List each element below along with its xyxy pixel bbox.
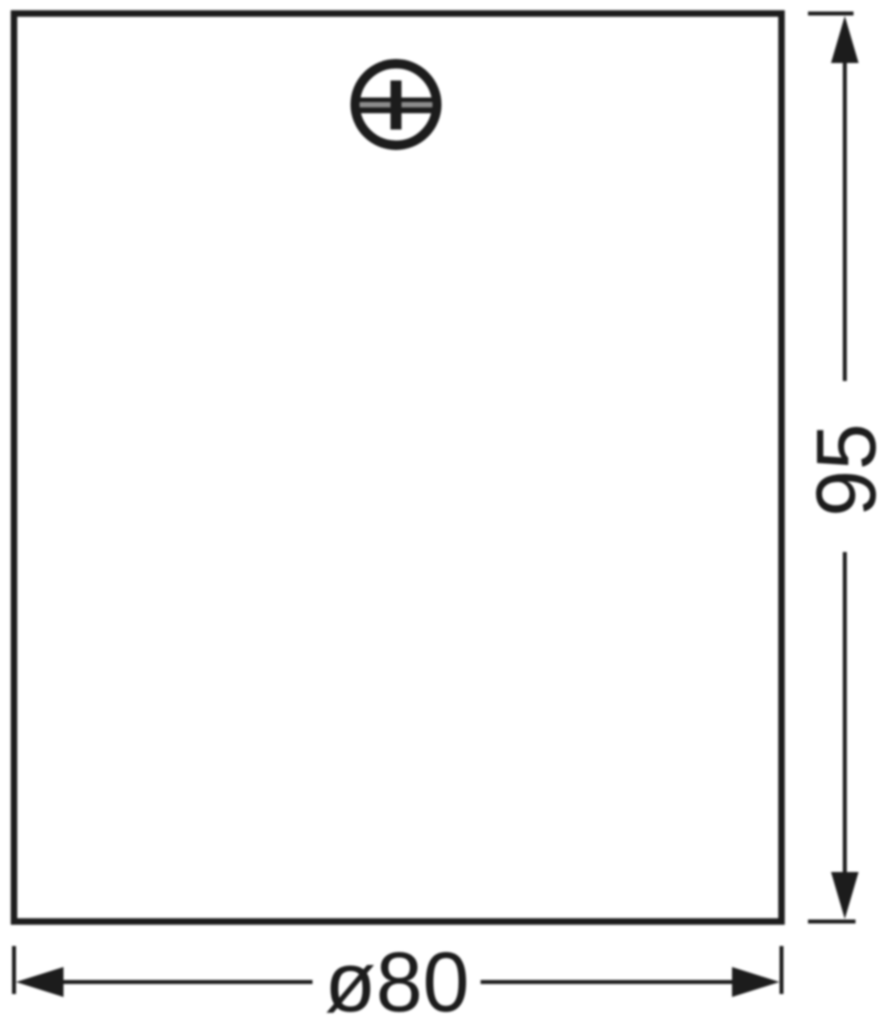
svg-text:ø80: ø80	[325, 935, 470, 1024]
svg-text:95: 95	[799, 423, 886, 516]
